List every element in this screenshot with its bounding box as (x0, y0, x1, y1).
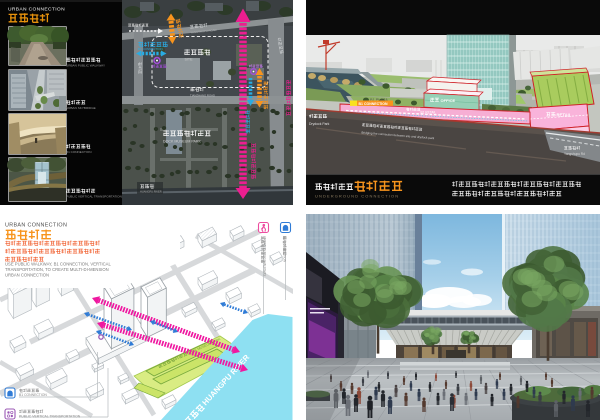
svg-text:B1 RETAIL: B1 RETAIL (421, 110, 437, 114)
svg-text:PUBLIC VERTICAL TRANSPORTATION: PUBLIC VERTICAL TRANSPORTATION (66, 195, 122, 199)
svg-text:B1 CONNECTION: B1 CONNECTION (138, 47, 163, 51)
svg-text:URBAN CONNECTION: URBAN CONNECTION (5, 272, 49, 277)
svg-text:URBAN PUBLIC WALKWAY: URBAN PUBLIC WALKWAY (262, 236, 266, 277)
svg-text:DOCK MUSEUM PARK: DOCK MUSEUM PARK (163, 140, 201, 144)
svg-text:UNDERGROUND CONNECTION: UNDERGROUND CONNECTION (315, 194, 399, 199)
svg-text:URBAN SKYBRIDGE: URBAN SKYBRIDGE (66, 106, 96, 110)
svg-text:USE PUBLIC WALKWAY, B1 CONNECT: USE PUBLIC WALKWAY, B1 CONNECTION, VERTI… (5, 261, 111, 266)
svg-text:SITE: SITE (185, 58, 194, 62)
svg-text:B1 CONNECTION: B1 CONNECTION (66, 150, 91, 154)
svg-text:HUANGPU RIVER: HUANGPU RIVER (140, 190, 162, 194)
svg-text:TIANZHANG ROAD: TIANZHANG ROAD (190, 94, 215, 98)
svg-text:PUBLIC VERTICAL TRANSPORTATION: PUBLIC VERTICAL TRANSPORTATION (19, 415, 81, 419)
svg-text:URBAN PUBLIC WALKWAY: URBAN PUBLIC WALKWAY (66, 64, 105, 68)
svg-text:Yangshupu Rd: Yangshupu Rd (564, 152, 585, 156)
svg-text:OFFICE: OFFICE (441, 98, 456, 103)
svg-text:B1 CONNECTION: B1 CONNECTION (19, 393, 47, 397)
svg-text:B1 CONNECTION: B1 CONNECTION (359, 102, 388, 106)
svg-text:URBAN CONNECTION: URBAN CONNECTION (5, 223, 67, 229)
svg-text:RETAIL: RETAIL (557, 112, 572, 117)
svg-text:TRANSPORTATION, TO CREATE MULT: TRANSPORTATION, TO CREATE MULTI-DI-MENSI… (5, 267, 109, 272)
svg-text:Drydock Park: Drydock Park (309, 122, 330, 126)
svg-text:URBAN CONNECTION: URBAN CONNECTION (8, 7, 65, 13)
svg-text:B1 CONNECTION: B1 CONNECTION (282, 236, 286, 263)
